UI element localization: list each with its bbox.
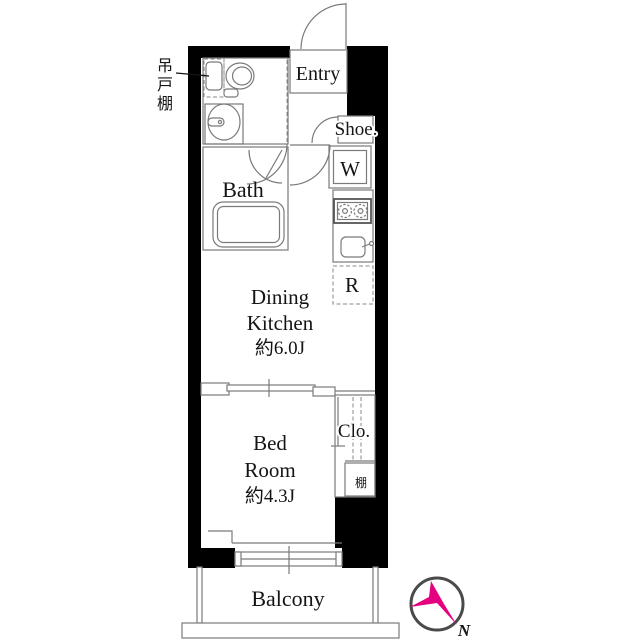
svg-text:Dining: Dining <box>251 285 310 309</box>
balcony-label: Balcony <box>251 586 324 611</box>
floorplan-canvas: 吊 戸 棚 Entry Shoe. W R Bath Dining Kitche… <box>0 0 640 640</box>
svg-text:Room: Room <box>244 458 295 482</box>
wall-top <box>188 46 290 58</box>
bath-label: Bath <box>222 177 264 202</box>
hanging-cupboard-char-3: 棚 <box>157 95 173 113</box>
dining-kitchen-label: Dining Kitchen 約6.0J <box>247 285 314 359</box>
wall-bottom-right-upper <box>335 497 388 548</box>
stove-icon <box>334 199 371 223</box>
shelf-label: 棚 <box>355 475 367 490</box>
fridge-label: R <box>345 273 359 297</box>
bedroom-area: 約4.3J <box>245 485 295 507</box>
wall-bottom-left <box>201 548 235 568</box>
hanging-cupboard-char-1: 吊 <box>157 58 173 75</box>
svg-text:Bed: Bed <box>253 431 287 455</box>
wall-top-right-block <box>347 46 388 116</box>
dining-kitchen-area: 約6.0J <box>255 337 305 359</box>
wall-left <box>188 46 201 568</box>
wall-bottom-right-lower <box>342 548 388 568</box>
wall-right <box>375 116 388 497</box>
compass-north-label: N <box>457 621 471 640</box>
washer-label: W <box>340 157 360 181</box>
entry-label: Entry <box>296 63 340 85</box>
shoe-label: Shoe. <box>335 119 378 140</box>
hanging-cupboard-char-2: 戸 <box>157 77 173 94</box>
closet-label: Clo. <box>338 421 370 442</box>
svg-text:Kitchen: Kitchen <box>247 311 314 335</box>
floorplan-svg: 吊 戸 棚 Entry Shoe. W R Bath Dining Kitche… <box>0 0 640 640</box>
